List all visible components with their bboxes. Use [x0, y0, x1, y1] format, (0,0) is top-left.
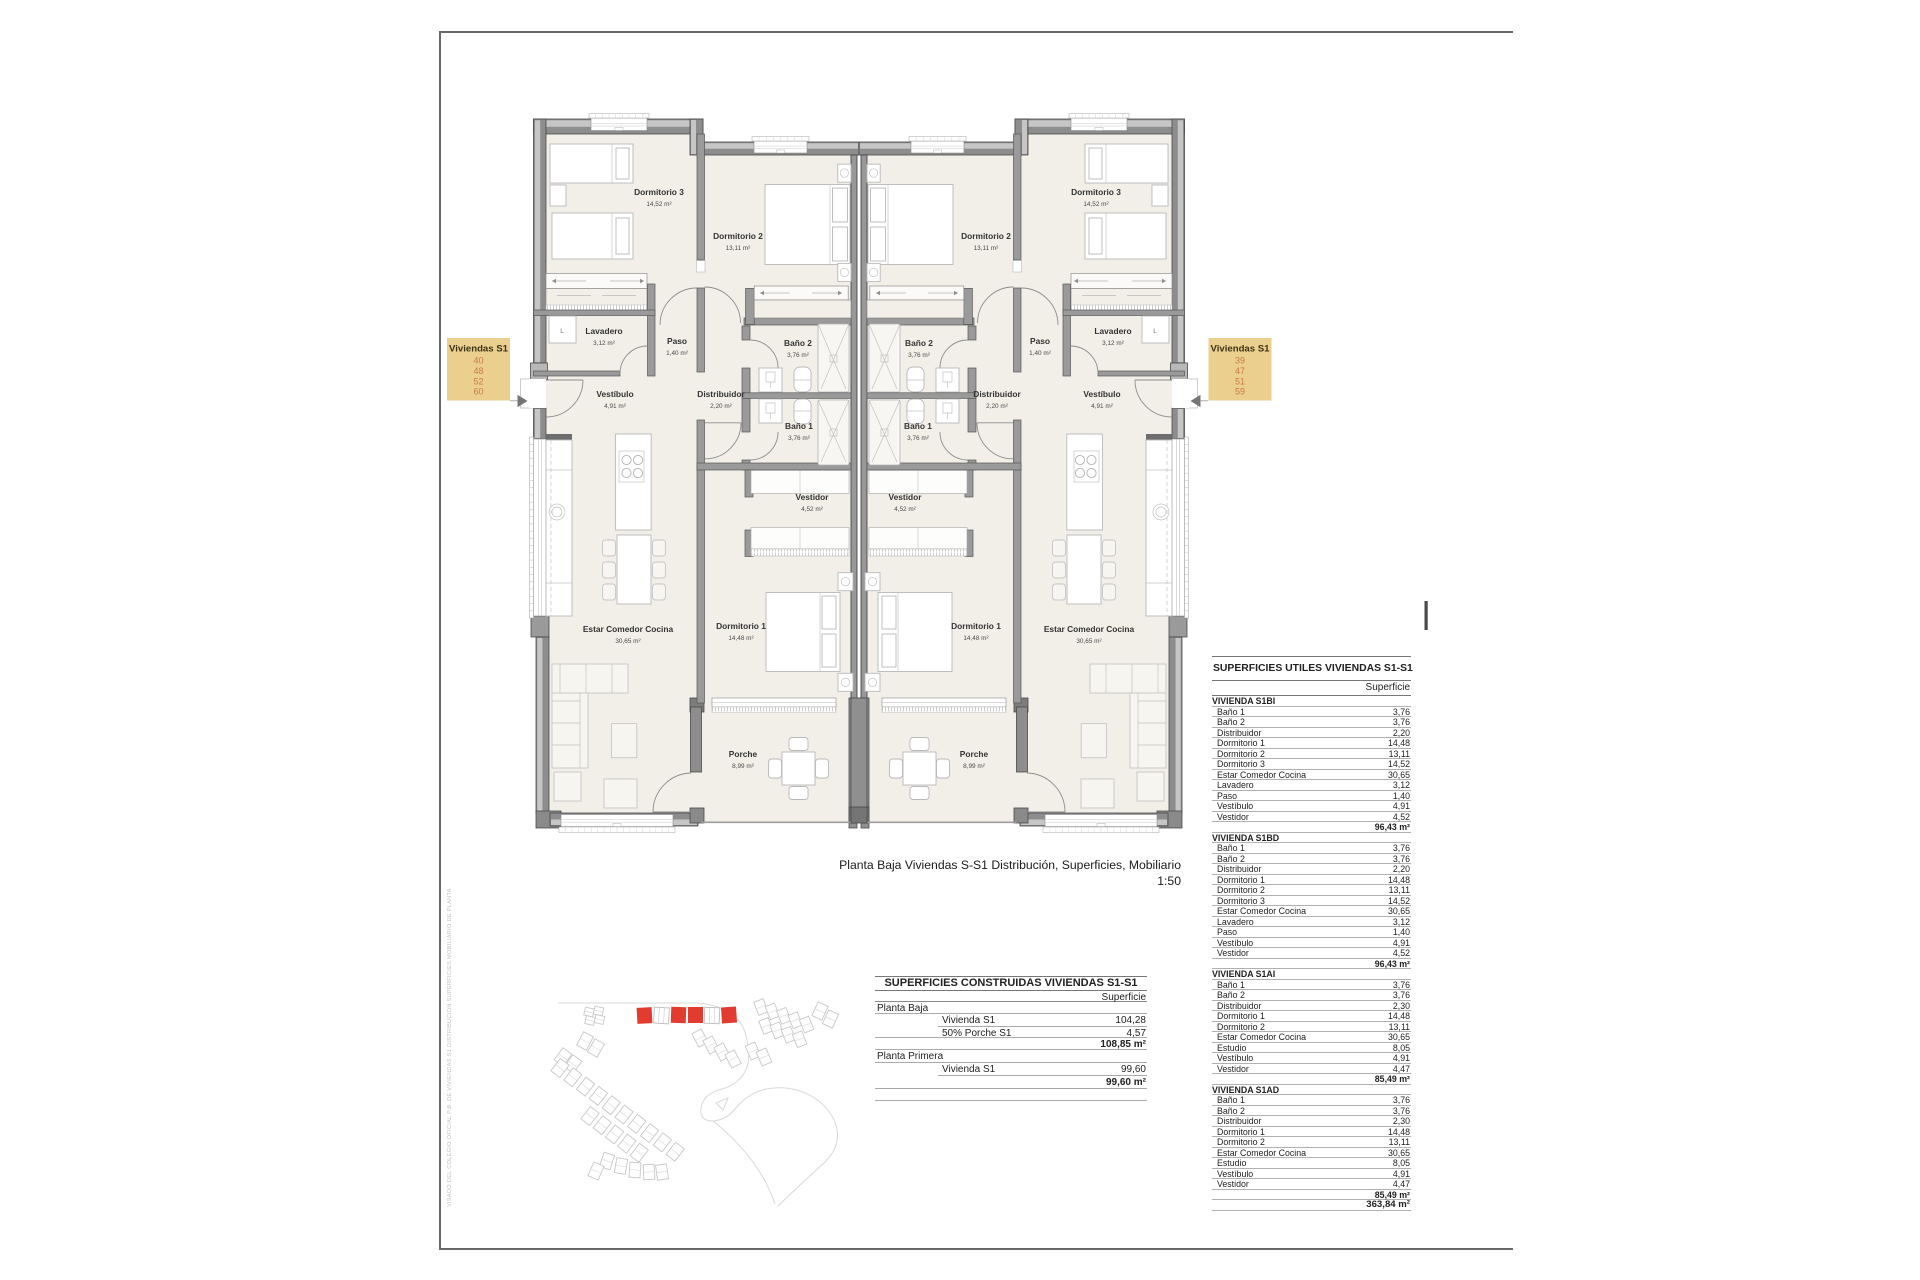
svg-text:4,91 m²: 4,91 m²	[1091, 403, 1113, 410]
svg-text:L: L	[1153, 328, 1157, 335]
svg-text:14,52 m²: 14,52 m²	[646, 201, 671, 208]
svg-text:Vestidor: Vestidor	[795, 492, 829, 502]
svg-text:Dormitorio 1: Dormitorio 1	[951, 621, 1001, 631]
svg-text:51: 51	[1235, 376, 1245, 386]
svg-text:14,52 m²: 14,52 m²	[1083, 201, 1108, 208]
svg-text:39: 39	[1235, 356, 1245, 366]
svg-text:Lavadero: Lavadero	[585, 326, 622, 336]
svg-text:Vestidor: Vestidor	[888, 492, 922, 502]
svg-text:Baño 1: Baño 1	[785, 421, 813, 431]
svg-text:Distribuidor: Distribuidor	[697, 389, 745, 399]
svg-text:Vestíbulo: Vestíbulo	[1083, 389, 1120, 399]
svg-text:8,99 m²: 8,99 m²	[732, 763, 754, 770]
svg-text:3,12 m²: 3,12 m²	[1102, 340, 1124, 347]
svg-text:8,99 m²: 8,99 m²	[963, 763, 985, 770]
svg-text:2,20 m²: 2,20 m²	[986, 403, 1008, 410]
svg-text:30,65 m²: 30,65 m²	[1076, 638, 1101, 645]
svg-text:52: 52	[473, 376, 483, 386]
svg-text:Estar Comedor Cocina: Estar Comedor Cocina	[1044, 624, 1135, 634]
svg-text:1,40 m²: 1,40 m²	[1029, 350, 1051, 357]
svg-text:4,52 m²: 4,52 m²	[894, 506, 916, 513]
svg-text:59: 59	[1235, 387, 1245, 397]
svg-text:Dormitorio 1: Dormitorio 1	[716, 621, 766, 631]
svg-text:3,12 m²: 3,12 m²	[593, 340, 615, 347]
svg-text:2,20 m²: 2,20 m²	[710, 403, 732, 410]
svg-text:13,11 m²: 13,11 m²	[726, 245, 751, 252]
svg-text:13,11 m²: 13,11 m²	[974, 245, 999, 252]
svg-text:14,48 m²: 14,48 m²	[728, 635, 753, 642]
svg-text:Lavadero: Lavadero	[1094, 326, 1131, 336]
svg-text:Estar Comedor Cocina: Estar Comedor Cocina	[583, 624, 674, 634]
svg-text:3,76 m²: 3,76 m²	[908, 352, 930, 359]
svg-text:Paso: Paso	[667, 336, 687, 346]
svg-text:1,40 m²: 1,40 m²	[666, 350, 688, 357]
svg-text:3,76 m²: 3,76 m²	[787, 352, 809, 359]
svg-text:Vestíbulo: Vestíbulo	[596, 389, 633, 399]
svg-text:3,76 m²: 3,76 m²	[788, 435, 810, 442]
svg-text:30,65 m²: 30,65 m²	[615, 638, 640, 645]
svg-text:Dormitorio 3: Dormitorio 3	[1071, 187, 1121, 197]
svg-text:47: 47	[1235, 366, 1245, 376]
svg-text:4,52 m²: 4,52 m²	[801, 506, 823, 513]
svg-text:Baño 2: Baño 2	[784, 338, 812, 348]
svg-text:Paso: Paso	[1030, 336, 1050, 346]
svg-text:60: 60	[473, 387, 483, 397]
svg-text:L: L	[560, 328, 564, 335]
svg-text:Distribuidor: Distribuidor	[973, 389, 1021, 399]
svg-text:Baño 2: Baño 2	[905, 338, 933, 348]
svg-text:Porche: Porche	[960, 749, 989, 759]
svg-text:Dormitorio 2: Dormitorio 2	[961, 231, 1011, 241]
svg-text:4,91 m²: 4,91 m²	[604, 403, 626, 410]
svg-text:48: 48	[473, 366, 483, 376]
svg-text:Viviendas S1: Viviendas S1	[449, 344, 509, 355]
svg-text:Dormitorio 2: Dormitorio 2	[713, 231, 763, 241]
svg-text:Dormitorio 3: Dormitorio 3	[634, 187, 684, 197]
svg-text:3,76 m²: 3,76 m²	[907, 435, 929, 442]
svg-text:Viviendas S1: Viviendas S1	[1210, 344, 1270, 355]
svg-text:Porche: Porche	[729, 749, 758, 759]
svg-text:Baño 1: Baño 1	[904, 421, 932, 431]
svg-text:40: 40	[473, 356, 483, 366]
svg-text:14,48 m²: 14,48 m²	[963, 635, 988, 642]
